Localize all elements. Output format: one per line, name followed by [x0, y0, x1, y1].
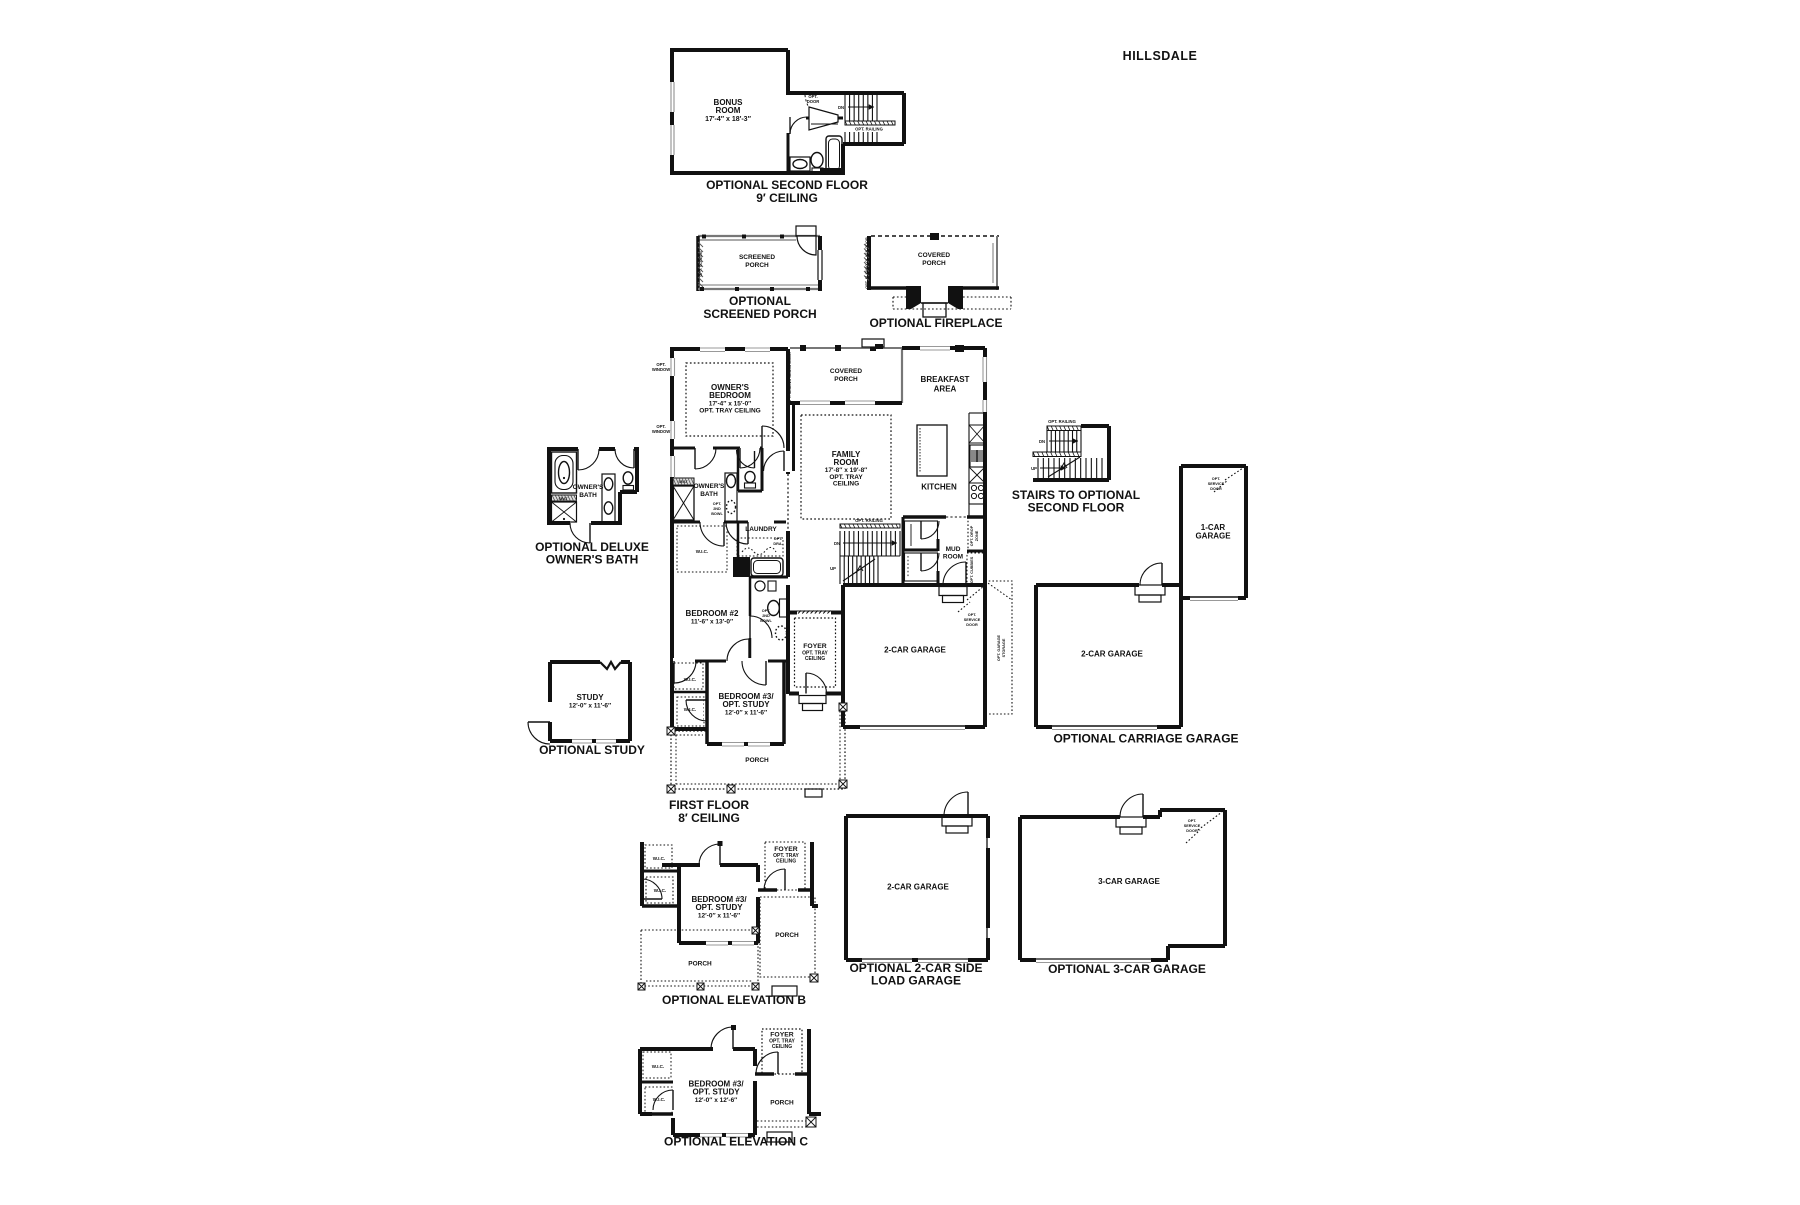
svg-text:SCREENED: SCREENED	[739, 254, 775, 261]
svg-text:ROOM: ROOM	[834, 458, 859, 467]
svg-text:OPT. RAILING: OPT. RAILING	[855, 518, 883, 523]
svg-text:PORCH: PORCH	[688, 961, 712, 968]
svg-text:OPT.: OPT.	[1212, 477, 1220, 481]
svg-text:2ND: 2ND	[713, 507, 721, 511]
svg-text:17′-4″ x 18′-3″: 17′-4″ x 18′-3″	[705, 116, 752, 123]
svg-text:PORCH: PORCH	[745, 262, 769, 269]
svg-text:ROOM: ROOM	[943, 554, 963, 561]
svg-text:OPTIONAL FIREPLACE: OPTIONAL FIREPLACE	[869, 316, 1002, 330]
svg-text:W.I.C.: W.I.C.	[652, 1064, 665, 1069]
svg-text:OPTIONAL CARRIAGE GARAGE: OPTIONAL CARRIAGE GARAGE	[1053, 732, 1238, 746]
svg-text:3-CAR GARAGE: 3-CAR GARAGE	[1098, 877, 1160, 886]
svg-text:BOWL: BOWL	[711, 512, 723, 516]
svg-text:PORCH: PORCH	[745, 757, 769, 764]
svg-text:DOOR: DOOR	[1186, 829, 1198, 833]
svg-text:SERVICE: SERVICE	[964, 618, 981, 622]
svg-text:OWNER'S: OWNER'S	[694, 483, 725, 490]
svg-text:12′-0″ x 11′-6″: 12′-0″ x 11′-6″	[569, 703, 611, 710]
svg-text:2ND: 2ND	[762, 614, 770, 618]
svg-text:DN: DN	[1039, 439, 1045, 444]
svg-text:STUDY: STUDY	[576, 693, 604, 702]
svg-text:DN: DN	[834, 541, 840, 546]
svg-text:DOOR: DOOR	[966, 623, 978, 627]
svg-text:SCREENED PORCH: SCREENED PORCH	[703, 307, 816, 321]
svg-text:UP: UP	[1031, 466, 1037, 471]
svg-text:2-CAR GARAGE: 2-CAR GARAGE	[887, 883, 949, 892]
svg-text:STORAGE: STORAGE	[1002, 638, 1006, 657]
svg-text:PORCH: PORCH	[834, 376, 858, 383]
svg-text:ROOM: ROOM	[716, 106, 741, 115]
svg-text:OPT. SLIDING GLASS DOOR: OPT. SLIDING GLASS DOOR	[865, 237, 869, 289]
svg-text:2-CAR GARAGE: 2-CAR GARAGE	[1081, 650, 1143, 659]
svg-text:WINDOW: WINDOW	[652, 429, 670, 434]
svg-text:OPTIONAL SECOND FLOOR: OPTIONAL SECOND FLOOR	[706, 178, 868, 192]
svg-text:OPT. STUDY: OPT. STUDY	[692, 1088, 740, 1097]
svg-text:OPT. STUDY: OPT. STUDY	[695, 903, 743, 912]
svg-text:OPT.: OPT.	[968, 613, 976, 617]
svg-text:OPT. SLIDING GLASS DOOR: OPT. SLIDING GLASS DOOR	[788, 352, 792, 404]
svg-text:OPTIONAL STUDY: OPTIONAL STUDY	[539, 743, 645, 757]
svg-text:DOOR: DOOR	[1210, 487, 1222, 491]
svg-text:OPT. DROP: OPT. DROP	[970, 525, 974, 546]
svg-text:DOOR: DOOR	[807, 99, 820, 104]
svg-text:W.I.C.: W.I.C.	[696, 549, 709, 554]
svg-text:BEDROOM #2: BEDROOM #2	[686, 609, 739, 618]
svg-text:OPT. RAILING: OPT. RAILING	[1048, 419, 1076, 424]
svg-text:SECOND FLOOR: SECOND FLOOR	[1028, 501, 1125, 515]
svg-text:SERVICE: SERVICE	[1208, 482, 1225, 486]
svg-text:W.I.C.: W.I.C.	[684, 707, 697, 712]
svg-text:BATH: BATH	[579, 492, 597, 499]
svg-text:12′-0″ x 11′-6″: 12′-0″ x 11′-6″	[698, 913, 740, 920]
svg-text:OPT. RAILING: OPT. RAILING	[855, 127, 883, 132]
svg-text:BATH: BATH	[700, 491, 718, 498]
svg-text:OPT. SCREEN: OPT. SCREEN	[699, 251, 703, 277]
svg-text:FOYER: FOYER	[803, 643, 827, 650]
svg-text:COVERED: COVERED	[918, 252, 950, 259]
svg-text:12′-0″ x 11′-6″: 12′-0″ x 11′-6″	[725, 710, 767, 717]
svg-text:8′ CEILING: 8′ CEILING	[678, 811, 740, 825]
svg-text:BEDROOM: BEDROOM	[709, 391, 751, 400]
svg-text:W.I.C.: W.I.C.	[653, 856, 666, 861]
svg-text:KITCHEN: KITCHEN	[921, 483, 957, 492]
svg-text:OPT.: OPT.	[713, 502, 721, 506]
svg-text:WINDOW: WINDOW	[652, 367, 670, 372]
svg-text:OPTIONAL: OPTIONAL	[729, 294, 791, 308]
svg-text:2-CAR GARAGE: 2-CAR GARAGE	[884, 646, 946, 655]
svg-text:LAUNDRY: LAUNDRY	[745, 526, 777, 533]
svg-text:W.I.C.: W.I.C.	[684, 677, 697, 682]
svg-text:17′-4″ x 15′-0″: 17′-4″ x 15′-0″	[709, 401, 752, 408]
svg-text:COVERED: COVERED	[830, 368, 862, 375]
svg-text:BREAKFAST: BREAKFAST	[921, 375, 970, 384]
svg-text:DN: DN	[838, 105, 844, 110]
svg-text:FOYER: FOYER	[774, 846, 798, 853]
svg-text:OPTIONAL 3-CAR GARAGE: OPTIONAL 3-CAR GARAGE	[1048, 962, 1206, 976]
svg-text:12′-0″ x 12′-6″: 12′-0″ x 12′-6″	[695, 1097, 738, 1104]
svg-text:CEILING: CEILING	[772, 1044, 792, 1050]
svg-text:AREA: AREA	[934, 385, 957, 394]
svg-text:OPT.: OPT.	[762, 609, 770, 613]
svg-text:SERVICE: SERVICE	[1184, 824, 1201, 828]
svg-text:OPT. STUDY: OPT. STUDY	[722, 700, 770, 709]
svg-text:MUD: MUD	[946, 546, 961, 553]
svg-text:DRA.: DRA.	[773, 542, 782, 546]
svg-text:ZONE: ZONE	[975, 530, 979, 541]
svg-text:OPT.: OPT.	[774, 537, 782, 541]
svg-text:UP: UP	[830, 566, 836, 571]
svg-text:OPT. CUBBIES: OPT. CUBBIES	[970, 556, 974, 583]
svg-text:PORCH: PORCH	[922, 260, 946, 267]
svg-text:GARAGE: GARAGE	[1195, 532, 1231, 541]
svg-text:PORCH: PORCH	[770, 1100, 794, 1107]
svg-text:9′ CEILING: 9′ CEILING	[756, 191, 818, 205]
svg-text:SEAT: SEAT	[678, 480, 688, 484]
svg-text:17′-8″ x 19′-8″: 17′-8″ x 19′-8″	[825, 467, 868, 474]
svg-text:OWNER'S BATH: OWNER'S BATH	[546, 553, 639, 567]
svg-text:PORCH: PORCH	[775, 932, 799, 939]
svg-text:FIRST FLOOR: FIRST FLOOR	[669, 798, 749, 812]
svg-text:LOAD GARAGE: LOAD GARAGE	[871, 974, 961, 988]
svg-text:OWNER'S: OWNER'S	[573, 484, 604, 491]
svg-text:OPTIONAL ELEVATION B: OPTIONAL ELEVATION B	[662, 993, 806, 1007]
svg-text:CEILING: CEILING	[776, 859, 796, 865]
svg-text:CEILING: CEILING	[833, 481, 859, 488]
svg-text:11′-6″ x 13′-0″: 11′-6″ x 13′-0″	[691, 619, 733, 626]
svg-text:OPT. TRAY CEILING: OPT. TRAY CEILING	[699, 408, 760, 415]
svg-text:FOYER: FOYER	[770, 1032, 794, 1039]
svg-text:OPT. GARAGE: OPT. GARAGE	[997, 634, 1001, 661]
svg-text:CEILING: CEILING	[805, 656, 825, 662]
svg-text:HILLSDALE: HILLSDALE	[1123, 49, 1198, 63]
svg-text:OPT.: OPT.	[1188, 819, 1196, 823]
svg-text:OPTIONAL ELEVATION C: OPTIONAL ELEVATION C	[664, 1135, 808, 1149]
svg-text:SEAT: SEAT	[558, 497, 568, 501]
